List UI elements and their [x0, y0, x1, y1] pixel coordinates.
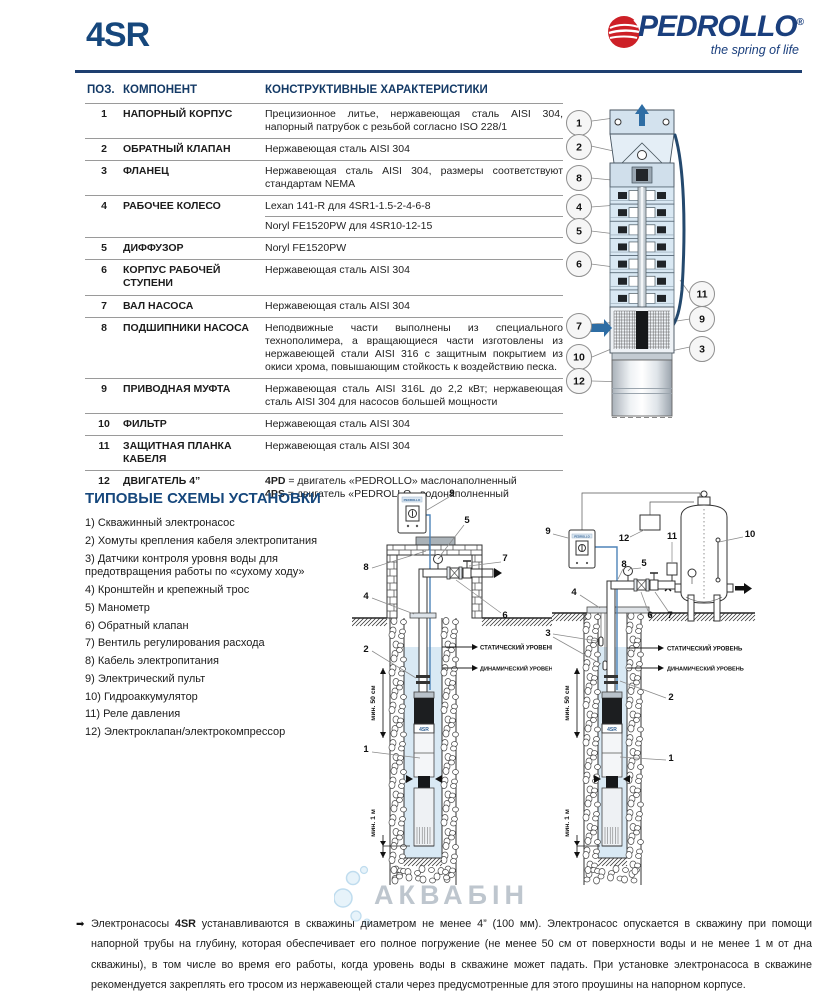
callout-3: 3 [545, 628, 550, 639]
row-position: 9 [85, 383, 123, 409]
row-characteristics: Нержавеющая сталь AISI 304 [265, 264, 563, 290]
scheme-item: 2) Хомуты крепления кабеля электропитани… [85, 535, 341, 549]
page-title: 4SR [86, 16, 149, 55]
table-row: 4РАБОЧЕЕ КОЛЕСОLexan 141-R для 4SR1-1.5-… [85, 195, 563, 237]
electric-panel: PEDROLLO [398, 493, 426, 533]
callout-2: 2 [567, 135, 592, 160]
callout-12: 12 [619, 533, 630, 544]
table-row: 11ЗАЩИТНАЯ ПЛАНКА КАБЕЛЯНержавеющая стал… [85, 435, 563, 470]
svg-text:PEDROLLO: PEDROLLO [574, 534, 590, 538]
callout-4: 4 [571, 587, 577, 598]
scheme-item: 8) Кабель электропитания [85, 655, 341, 669]
schemes-section-title: ТИПОВЫЕ СХЕМЫ УСТАНОВКИ [85, 490, 321, 507]
svg-text:5: 5 [576, 226, 582, 238]
dimension-min50: мин. 50 см [564, 668, 580, 738]
svg-text:2: 2 [576, 142, 582, 154]
cable-clamp [604, 681, 618, 684]
scheme-item: 10) Гидроаккумулятор [85, 691, 341, 705]
row-component: ЗАЩИТНАЯ ПЛАНКА КАБЕЛЯ [123, 440, 265, 466]
callout-8: 8 [363, 562, 368, 573]
row-characteristics: Нержавеющая сталь AISI 304 [265, 143, 563, 156]
row-position: 7 [85, 300, 123, 313]
col-header-characteristics: КОНСТРУКТИВНЫЕ ХАРАКТЕРИСТИКИ [265, 84, 563, 96]
dynamic-level-label: ДИНАМИЧЕСКИЙ УРОВЕНЬ [667, 665, 744, 673]
pressure-switch [667, 563, 677, 575]
scheme-item: 7) Вентиль регулирования расхода [85, 637, 341, 651]
row-component: ПРИВОДНАЯ МУФТА [123, 383, 265, 409]
row-position: 2 [85, 143, 123, 156]
callout-1: 1 [567, 111, 592, 136]
svg-text:PEDROLLO: PEDROLLO [404, 498, 421, 502]
riser-pipe [419, 569, 427, 692]
footer-model: 4SR [175, 918, 196, 930]
callout-5: 5 [641, 558, 647, 569]
brand-tagline: the spring of life [711, 43, 799, 57]
scheme-item: 5) Манометр [85, 602, 341, 616]
dimension-min50: мин. 50 см [370, 668, 386, 738]
cable-clamp [604, 675, 618, 678]
callout-3: 3 [690, 337, 715, 362]
callout-1: 1 [363, 744, 369, 755]
pump-cutaway-diagram: 1 2 8 4 5 6 7 10 12 11 9 3 [552, 95, 822, 420]
callout-12: 12 [567, 369, 592, 394]
row-position: 11 [85, 440, 123, 466]
callout-6: 6 [502, 610, 507, 621]
callout-9: 9 [545, 526, 550, 537]
row-characteristics: Нержавеющая сталь AISI 304, размеры соот… [265, 165, 563, 191]
scheme-item: 1) Скважинный электронасос [85, 517, 341, 531]
cable-clamp [416, 681, 430, 684]
row-characteristics: Noryl FE1520PW [265, 242, 563, 255]
callout-7: 7 [502, 553, 507, 564]
row-characteristics: Прецизионное литье, нержавеющая сталь AI… [265, 108, 563, 134]
row-component: ДИФФУЗОР [123, 242, 265, 255]
svg-text:9: 9 [699, 314, 705, 326]
callout-8: 8 [621, 559, 626, 570]
scheme-item: 11) Реле давления [85, 708, 341, 722]
tank-gauge [688, 569, 696, 577]
callout-9: 9 [690, 307, 715, 332]
row-characteristics: Нержавеющая сталь AISI 304 [265, 440, 563, 466]
svg-text:7: 7 [576, 321, 582, 333]
row-characteristics: Неподвижные части выполнены из специальн… [265, 322, 563, 374]
svg-text:4: 4 [576, 202, 582, 214]
table-row: 1НАПОРНЫЙ КОРПУСПрецизионное литье, нерж… [85, 103, 563, 138]
row-component: ПОДШИПНИКИ НАСОСА [123, 322, 265, 374]
electric-panel: PEDROLLO [569, 530, 595, 568]
callout-11: 11 [667, 531, 678, 542]
row-position: 4 [85, 200, 123, 233]
table-header-row: ПОЗ. КОМПОНЕНТ КОНСТРУКТИВНЫЕ ХАРАКТЕРИС… [85, 80, 563, 103]
watermark-text: АКВАБІН [374, 880, 529, 911]
svg-text:4SR: 4SR [419, 727, 429, 733]
table-row: 6КОРПУС РАБОЧЕЙ СТУПЕНИНержавеющая сталь… [85, 259, 563, 294]
svg-text:11: 11 [696, 289, 707, 301]
brand-logo: PEDROLLO® the spring of life [604, 12, 803, 57]
callout-6: 6 [647, 610, 652, 621]
installation-diagram-right: PEDROLLO [540, 485, 825, 897]
callout-4: 4 [363, 591, 369, 602]
row-position: 5 [85, 242, 123, 255]
col-header-component: КОМПОНЕНТ [123, 84, 265, 96]
svg-text:6: 6 [576, 259, 582, 271]
table-row: 10ФИЛЬТРНержавеющая сталь AISI 304 [85, 413, 563, 435]
scheme-item: 12) Электроклапан/электрокомпрессор [85, 726, 341, 740]
table-row: 8ПОДШИПНИКИ НАСОСАНеподвижные части выпо… [85, 317, 563, 378]
table-body: 1НАПОРНЫЙ КОРПУСПрецизионное литье, нерж… [85, 103, 563, 505]
scheme-item: 4) Кронштейн и крепежный трос [85, 584, 341, 598]
schemes-list: 1) Скважинный электронасос2) Хомуты креп… [85, 517, 341, 744]
callout-9: 9 [449, 488, 454, 499]
catalog-page: 4SR PEDROLLO® the spring of life ПОЗ. КО… [0, 0, 825, 1000]
callout-11: 11 [690, 282, 715, 307]
table-row: 5ДИФФУЗОРNoryl FE1520PW [85, 237, 563, 259]
svg-text:10: 10 [573, 352, 585, 364]
svg-text:мин. 1 м: мин. 1 м [564, 809, 571, 837]
brand-name: PEDROLLO® [638, 12, 803, 42]
callout-10: 10 [745, 529, 756, 540]
callout-1: 1 [668, 753, 674, 764]
header-divider [75, 70, 802, 73]
row-characteristics: Lexan 141-R для 4SR1-1.5-2-4-6-8Noryl FE… [265, 200, 563, 233]
table-row: 7ВАЛ НАСОСАНержавеющая сталь AISI 304 [85, 295, 563, 317]
water-levels: СТАТИЧЕСКИЙ УРОВЕНЬ ДИНАМИЧЕСКИЙ УРОВЕНЬ [627, 645, 744, 673]
static-level-label: СТАТИЧЕСКИЙ УРОВЕНЬ [667, 645, 743, 653]
row-characteristics: Нержавеющая сталь AISI 304 [265, 418, 563, 431]
table-row: 9ПРИВОДНАЯ МУФТАНержавеющая сталь AISI 3… [85, 378, 563, 413]
svg-text:12: 12 [573, 376, 585, 388]
row-component: НАПОРНЫЙ КОРПУС [123, 108, 265, 134]
scheme-item: 6) Обратный клапан [85, 620, 341, 634]
callout-7: 7 [667, 610, 672, 621]
wellhead-cover [587, 607, 649, 613]
svg-text:1: 1 [576, 118, 582, 130]
callout-5: 5 [567, 219, 592, 244]
row-characteristics: Нержавеющая сталь AISI 316L до 2,2 кВт; … [265, 383, 563, 409]
components-table: ПОЗ. КОМПОНЕНТ КОНСТРУКТИВНЫЕ ХАРАКТЕРИС… [85, 80, 563, 505]
cable-clamp [416, 675, 430, 678]
callout-4: 4 [567, 195, 592, 220]
row-component: ФЛАНЕЦ [123, 165, 265, 191]
svg-text:3: 3 [699, 344, 705, 356]
row-component: ОБРАТНЫЙ КЛАПАН [123, 143, 265, 156]
flow-valve [463, 568, 471, 578]
callout-8: 8 [567, 166, 592, 191]
table-row: 2ОБРАТНЫЙ КЛАПАННержавеющая сталь AISI 3… [85, 138, 563, 160]
row-position: 3 [85, 165, 123, 191]
installation-diagram-left: PEDROLLO 4SR СТАТИЧЕСКИЙ [352, 485, 552, 897]
svg-text:8: 8 [576, 173, 582, 185]
row-position: 8 [85, 322, 123, 374]
callout-7: 7 [567, 314, 592, 339]
callout-6: 6 [567, 252, 592, 277]
svg-text:4SR: 4SR [607, 727, 617, 733]
row-position: 1 [85, 108, 123, 134]
callout-2: 2 [668, 692, 673, 703]
row-component: ФИЛЬТР [123, 418, 265, 431]
svg-text:мин. 50 см: мин. 50 см [564, 685, 571, 720]
svg-text:мин. 50 см: мин. 50 см [370, 685, 377, 720]
row-position: 6 [85, 264, 123, 290]
footer-note: ➡Электронасосы 4SR устанавливаются в скв… [76, 914, 812, 996]
row-component: КОРПУС РАБОЧЕЙ СТУПЕНИ [123, 264, 265, 290]
tank-top-valve [698, 497, 710, 505]
row-position: 10 [85, 418, 123, 431]
scheme-item: 9) Электрический пульт [85, 673, 341, 687]
row-characteristics: Нержавеющая сталь AISI 304 [265, 300, 563, 313]
row-component: РАБОЧЕЕ КОЛЕСО [123, 200, 265, 233]
callout-5: 5 [464, 515, 470, 526]
col-header-pos: ПОЗ. [85, 84, 123, 96]
callout-2: 2 [363, 644, 368, 655]
pressure-tank [664, 491, 752, 621]
callout-10: 10 [567, 345, 592, 370]
scheme-item: 3) Датчики контроля уровня воды для пред… [85, 553, 341, 581]
svg-text:мин. 1 м: мин. 1 м [370, 809, 377, 837]
table-row: 3ФЛАНЕЦНержавеющая сталь AISI 304, разме… [85, 160, 563, 195]
electrovalve-box [640, 515, 660, 530]
arrow-bullet-icon: ➡ [76, 915, 84, 935]
pump-body [588, 104, 684, 418]
row-component: ВАЛ НАСОСА [123, 300, 265, 313]
flow-valve [650, 580, 658, 590]
